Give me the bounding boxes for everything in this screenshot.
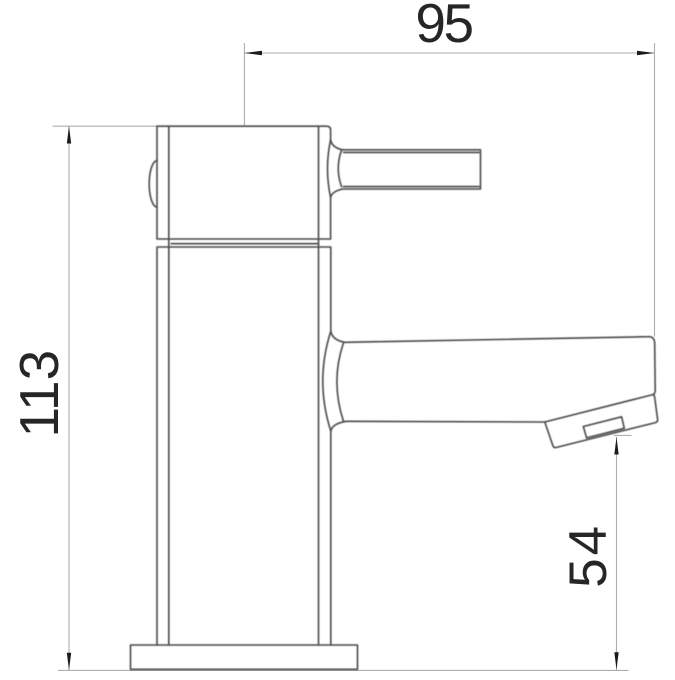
svg-text:113: 113 xyxy=(8,350,70,438)
svg-text:54: 54 xyxy=(559,523,618,588)
svg-text:95: 95 xyxy=(415,0,472,54)
